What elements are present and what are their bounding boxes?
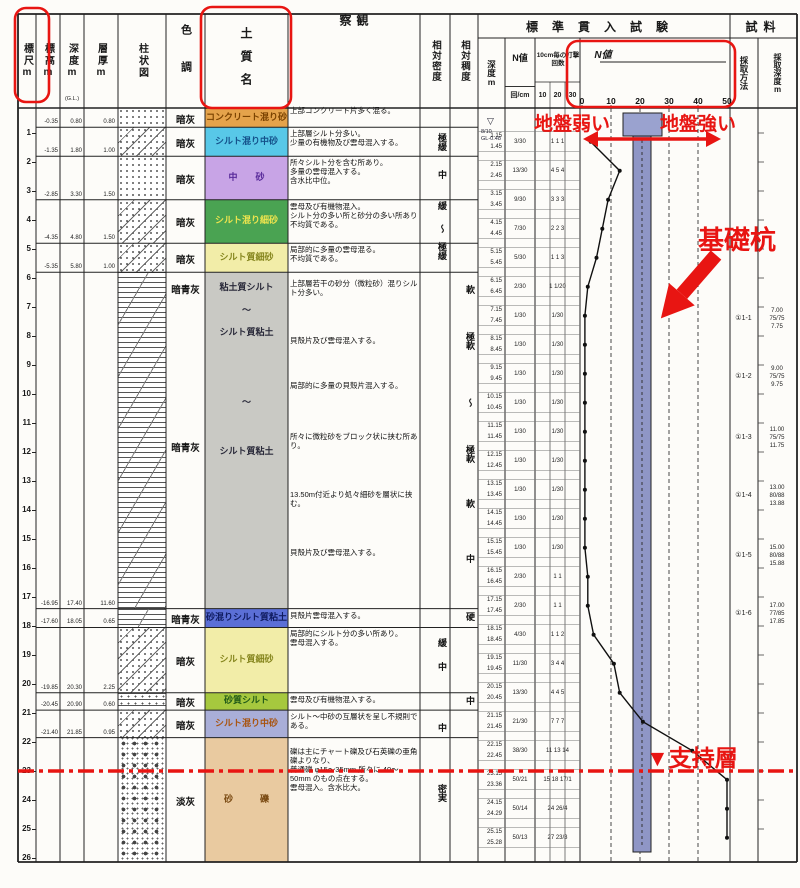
water-level-value: GL-0.48 — [481, 136, 501, 142]
nvalue-scale-tick-label: 10 — [606, 96, 616, 106]
pile-cap — [623, 113, 662, 136]
nvalue-data-point — [583, 546, 587, 550]
nvalue-data-point — [592, 633, 596, 637]
nvalue-data-point — [725, 807, 729, 811]
nvalue-scale-tick-label: 30 — [664, 96, 674, 106]
water-level-date: 8/10 — [481, 129, 492, 135]
nvalue-data-point — [583, 430, 587, 434]
nvalue-scale-tick-label: 20 — [635, 96, 645, 106]
nvalue-data-point — [586, 604, 590, 608]
nvalue-data-point — [583, 401, 587, 405]
nvalue-data-point — [583, 488, 587, 492]
annotation-foundation-pile: 基礎杭 — [698, 225, 776, 255]
nvalue-data-point — [725, 836, 729, 840]
boring-log-sheet: 標尺m 標高m 深度m (G.L.) 層厚m 柱状図 色調 土質名 観察 相対密… — [0, 0, 800, 888]
nvalue-data-point — [618, 169, 622, 173]
nvalue-data-point — [641, 720, 645, 724]
nvalue-data-point — [612, 662, 616, 666]
big-red-arrow-icon — [648, 244, 729, 330]
nvalue-data-point — [583, 459, 587, 463]
water-level-icon: ▽ — [487, 116, 494, 126]
nvalue-data-point — [583, 372, 587, 376]
nvalue-data-point — [583, 343, 587, 347]
nvalue-data-point — [606, 198, 610, 202]
red-highlight-box — [567, 41, 735, 107]
nvalue-data-point — [586, 575, 590, 579]
nvalue-scale-tick-label: 40 — [693, 96, 703, 106]
nvalue-data-point — [595, 256, 599, 260]
annotation-bearing-stratum: ▼支持層 — [646, 745, 738, 771]
annotation-ground-strong: 地盤強い — [660, 112, 736, 135]
nvalue-data-point — [586, 285, 590, 289]
red-highlight-box — [201, 7, 291, 108]
nvalue-data-point — [583, 517, 587, 521]
grid-and-graph-overlay: 01020304050▽8/10GL-0.48地盤弱い地盤強い基礎杭▼支持層 — [0, 0, 800, 888]
red-highlight-box — [15, 8, 49, 102]
annotation-ground-weak: 地盤弱い — [534, 112, 610, 135]
nvalue-data-point — [583, 314, 587, 318]
nvalue-data-point — [600, 227, 604, 231]
nvalue-data-point — [725, 778, 729, 782]
nvalue-data-point — [618, 691, 622, 695]
nvalue-scale-tick-label: 0 — [580, 96, 585, 106]
